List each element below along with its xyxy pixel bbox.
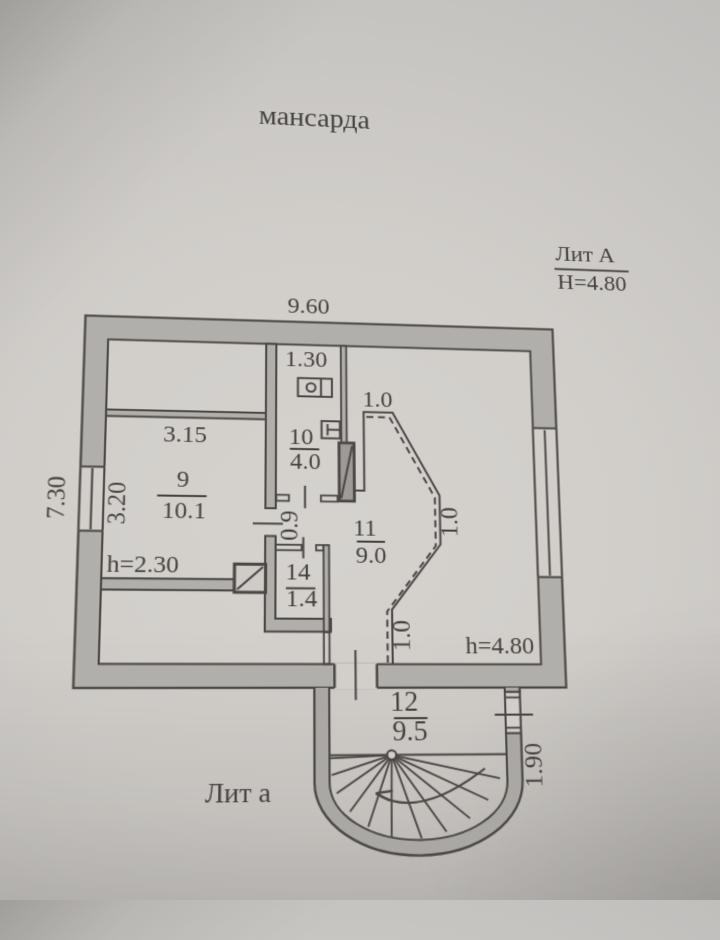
- svg-text:1.30: 1.30: [285, 345, 327, 371]
- svg-text:1.4: 1.4: [286, 584, 318, 611]
- svg-text:3.15: 3.15: [163, 420, 207, 447]
- svg-text:10.1: 10.1: [162, 496, 207, 523]
- svg-text:9.60: 9.60: [287, 292, 329, 318]
- svg-text:12: 12: [390, 686, 419, 718]
- svg-text:мансарда: мансарда: [259, 100, 370, 134]
- svg-text:1.0: 1.0: [388, 620, 416, 651]
- svg-text:1.0: 1.0: [362, 386, 392, 412]
- svg-text:h=4.80: h=4.80: [465, 631, 534, 658]
- svg-text:0.9: 0.9: [275, 510, 302, 541]
- svg-text:1.0: 1.0: [436, 507, 463, 537]
- svg-text:14: 14: [285, 558, 311, 585]
- svg-text:9: 9: [177, 466, 190, 493]
- svg-text:1.90: 1.90: [519, 743, 548, 788]
- svg-text:3.20: 3.20: [102, 481, 131, 524]
- svg-text:7.30: 7.30: [41, 476, 71, 519]
- svg-text:9.0: 9.0: [356, 541, 387, 568]
- svg-text:11: 11: [353, 515, 377, 542]
- svg-text:9.5: 9.5: [392, 714, 428, 747]
- svg-text:Лит а: Лит а: [205, 778, 272, 810]
- svg-text:4.0: 4.0: [290, 448, 321, 475]
- svg-text:Лит А: Лит А: [555, 242, 616, 268]
- svg-text:10: 10: [289, 423, 314, 449]
- svg-text:H=4.80: H=4.80: [557, 269, 627, 295]
- svg-text:h=2.30: h=2.30: [106, 549, 179, 577]
